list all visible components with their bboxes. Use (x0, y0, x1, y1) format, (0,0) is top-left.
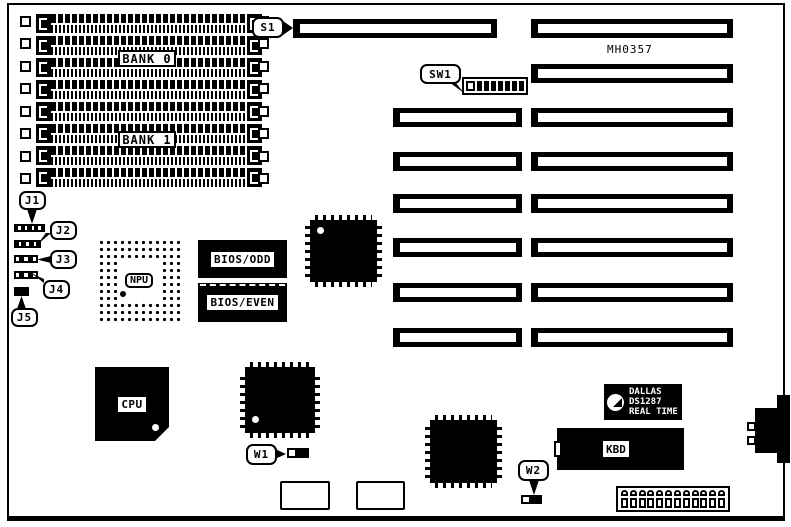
memory-edge-tab (258, 173, 269, 184)
expansion-slot-extension (393, 152, 522, 171)
keyboard-connector-shell (777, 395, 790, 463)
memory-edge-tab (258, 61, 269, 72)
chip-pins (315, 372, 320, 428)
power-connector (616, 486, 730, 512)
s1-callout: S1 (252, 17, 284, 38)
socket-end-cap (36, 168, 51, 187)
power-pin-row-top (621, 490, 725, 496)
pin1-dot-icon (152, 424, 159, 431)
crystal-oscillator-1 (280, 481, 330, 510)
j2-header (14, 240, 41, 248)
memory-edge-tab (20, 128, 31, 139)
full-length-slot-column (531, 0, 733, 350)
cpu-chip: CPU (95, 367, 169, 441)
power-pin (683, 490, 690, 496)
socket-end-cap (36, 36, 51, 55)
power-terminal (718, 498, 725, 508)
memory-socket-row (36, 168, 262, 187)
chip-pins (425, 425, 430, 478)
pin-cell (484, 81, 489, 91)
expansion-slot (531, 238, 733, 257)
chip-pins (250, 362, 310, 367)
power-terminal (700, 498, 707, 508)
chip-pins (240, 372, 245, 428)
chip-pins (435, 483, 492, 488)
pin-cell (519, 81, 524, 91)
npu-socket: NPU (97, 238, 181, 322)
power-pin (718, 490, 725, 496)
pin-cell (42, 225, 44, 231)
memory-edge-tab (20, 173, 31, 184)
bios-even-label: BIOS/EVEN (207, 295, 277, 310)
chip-pins (315, 215, 372, 220)
power-terminal (630, 498, 637, 508)
expansion-slot-extension (393, 328, 522, 347)
crystal-oscillator-2 (356, 481, 405, 510)
w2-callout: W2 (518, 460, 549, 481)
socket-end-cap (36, 14, 51, 33)
pin-cell (512, 81, 517, 91)
rtc-chip-text: DALLAS DS1287 REAL TIME (629, 387, 678, 417)
dip-socket-comb (51, 80, 247, 99)
dip-socket-comb (51, 146, 247, 165)
expansion-slot (531, 152, 733, 171)
power-pin-row-bottom (621, 498, 725, 508)
chip-pins (315, 282, 372, 287)
keyboard-connector-pin (747, 436, 756, 445)
expansion-slot (531, 64, 733, 83)
chip-pins (377, 225, 382, 277)
qfp-chip-2 (245, 367, 315, 433)
j2-callout: J2 (50, 221, 77, 240)
power-terminal (639, 498, 646, 508)
memory-edge-tab (20, 16, 31, 27)
alarm-clock-icon (606, 391, 626, 413)
expansion-slot-extension (393, 194, 522, 213)
power-terminal (656, 498, 663, 508)
pin-cell (491, 81, 496, 91)
expansion-slot (531, 283, 733, 302)
power-terminal (709, 498, 716, 508)
j5-header (14, 287, 29, 296)
power-pin (700, 490, 707, 496)
pin-cell (498, 81, 503, 91)
j3-callout: J3 (50, 250, 77, 269)
chip-pins (305, 225, 310, 277)
rtc-chip: DALLAS DS1287 REAL TIME (604, 384, 682, 420)
pin-cell (505, 81, 510, 91)
expansion-slot-extension (393, 283, 522, 302)
kbd-chip: KBD (557, 428, 684, 470)
kbd-label: KBD (603, 441, 629, 457)
memory-socket-row (36, 102, 262, 121)
socket-end-cap (36, 146, 51, 165)
power-terminal (665, 498, 672, 508)
qfp-chip-1 (310, 220, 377, 282)
power-pin (621, 490, 628, 496)
memory-edge-tab (258, 151, 269, 162)
expansion-slot (531, 194, 733, 213)
npu-label: NPU (125, 273, 153, 288)
bios-even-chip: BIOS/EVEN (198, 283, 287, 322)
power-pin (665, 490, 672, 496)
socket-end-cap (36, 58, 51, 77)
rtc-brand: DALLAS (629, 387, 678, 397)
w1-jumper (287, 448, 309, 458)
memory-edge-tab (20, 38, 31, 49)
power-pin (647, 490, 654, 496)
power-pin (709, 490, 716, 496)
bank1-label: BANK 1 (118, 131, 176, 148)
memory-edge-tab (258, 128, 269, 139)
dip-socket-comb (51, 14, 247, 33)
expansion-slot (531, 19, 733, 38)
power-pin (674, 490, 681, 496)
memory-edge-tab (20, 61, 31, 72)
power-terminal (674, 498, 681, 508)
w1-callout: W1 (246, 444, 277, 465)
power-terminal (692, 498, 699, 508)
bank0-label: BANK 0 (118, 50, 176, 67)
pin1-dot-icon (317, 227, 324, 234)
pin-cell (302, 449, 308, 457)
memory-edge-tab (258, 83, 269, 94)
memory-socket-row (36, 80, 262, 99)
memory-edge-tab (20, 83, 31, 94)
expansion-slot-extension (393, 108, 522, 127)
j4-callout: J4 (43, 280, 70, 299)
power-pin (639, 490, 646, 496)
chip-pins (435, 415, 492, 420)
memory-socket-row (36, 14, 262, 33)
pin-cell (32, 256, 37, 262)
memory-bank-array (36, 14, 262, 187)
j5-callout: J5 (11, 308, 38, 327)
rtc-model: DS1287 (629, 397, 678, 407)
j1-header (14, 224, 45, 232)
sw1-callout: SW1 (420, 64, 461, 84)
pin-cell (288, 449, 296, 457)
pin-cell (22, 288, 29, 295)
power-pin (692, 490, 699, 496)
extension-slot-column (393, 0, 522, 350)
expansion-slot (531, 108, 733, 127)
pin-cell (466, 81, 475, 91)
dip-socket-comb (51, 102, 247, 121)
j3-header (14, 255, 38, 263)
pin1-dot-icon (120, 291, 126, 297)
power-pin (630, 490, 637, 496)
chip-pins (497, 425, 502, 478)
bios-odd-label: BIOS/ODD (211, 252, 274, 267)
pin-cell (535, 496, 541, 503)
qfp-chip-3 (430, 420, 497, 483)
memory-socket-row (36, 146, 262, 165)
dip-switch-sw1 (462, 77, 528, 95)
socket-end-cap (36, 124, 51, 143)
cpu-label: CPU (118, 397, 145, 412)
chip-pins (250, 433, 310, 438)
memory-edge-tab (258, 38, 269, 49)
bios-odd-chip: BIOS/ODD (198, 240, 287, 278)
keyboard-connector-pin (747, 422, 756, 431)
power-terminal (621, 498, 628, 508)
memory-edge-tab-column-right (258, 16, 269, 184)
memory-edge-tab-column-left (20, 16, 31, 184)
dip-socket-comb (51, 168, 247, 187)
power-pin (656, 490, 663, 496)
socket-end-cap (36, 80, 51, 99)
memory-edge-tab (258, 106, 269, 117)
rtc-type: REAL TIME (629, 407, 678, 417)
chip-notch (554, 441, 562, 457)
w2-jumper (521, 495, 542, 504)
pin1-dot-icon (252, 416, 259, 423)
power-terminal (647, 498, 654, 508)
expansion-slot-extension (393, 238, 522, 257)
pin-cell (477, 81, 482, 91)
power-terminal (683, 498, 690, 508)
memory-edge-tab (20, 151, 31, 162)
j1-callout: J1 (19, 191, 46, 210)
motherboard-diagram: BANK 0 BANK 1 S1 MH0357 SW1 J1 J2 J3 J4 … (0, 0, 791, 527)
memory-edge-tab (20, 106, 31, 117)
expansion-slot (531, 328, 733, 347)
pin-cell (522, 496, 530, 503)
socket-end-cap (36, 102, 51, 121)
